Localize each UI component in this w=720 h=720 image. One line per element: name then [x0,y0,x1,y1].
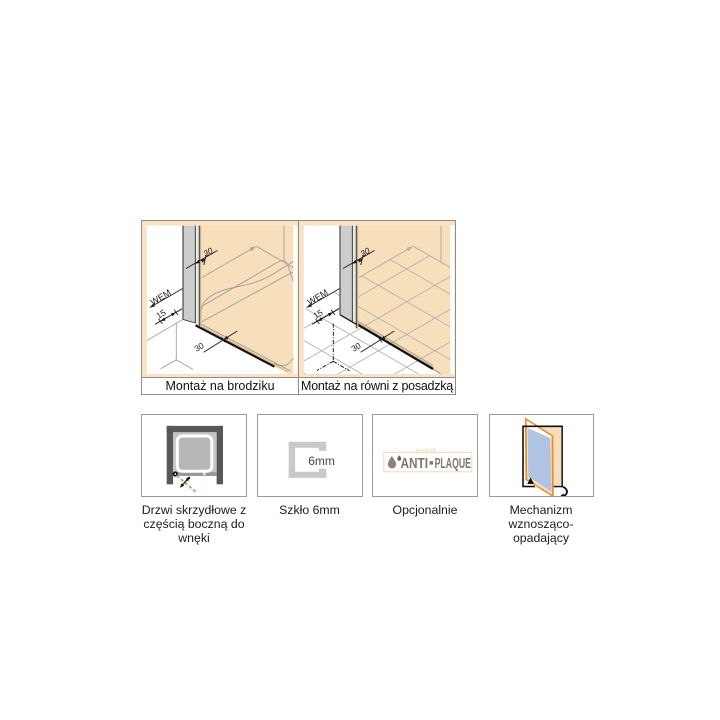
svg-text:geprüft: geprüft [416,448,436,455]
svg-text:PLAQUE: PLAQUE [435,456,472,472]
svg-text:6mm: 6mm [308,454,335,468]
svg-text:ANTI: ANTI [401,456,429,472]
